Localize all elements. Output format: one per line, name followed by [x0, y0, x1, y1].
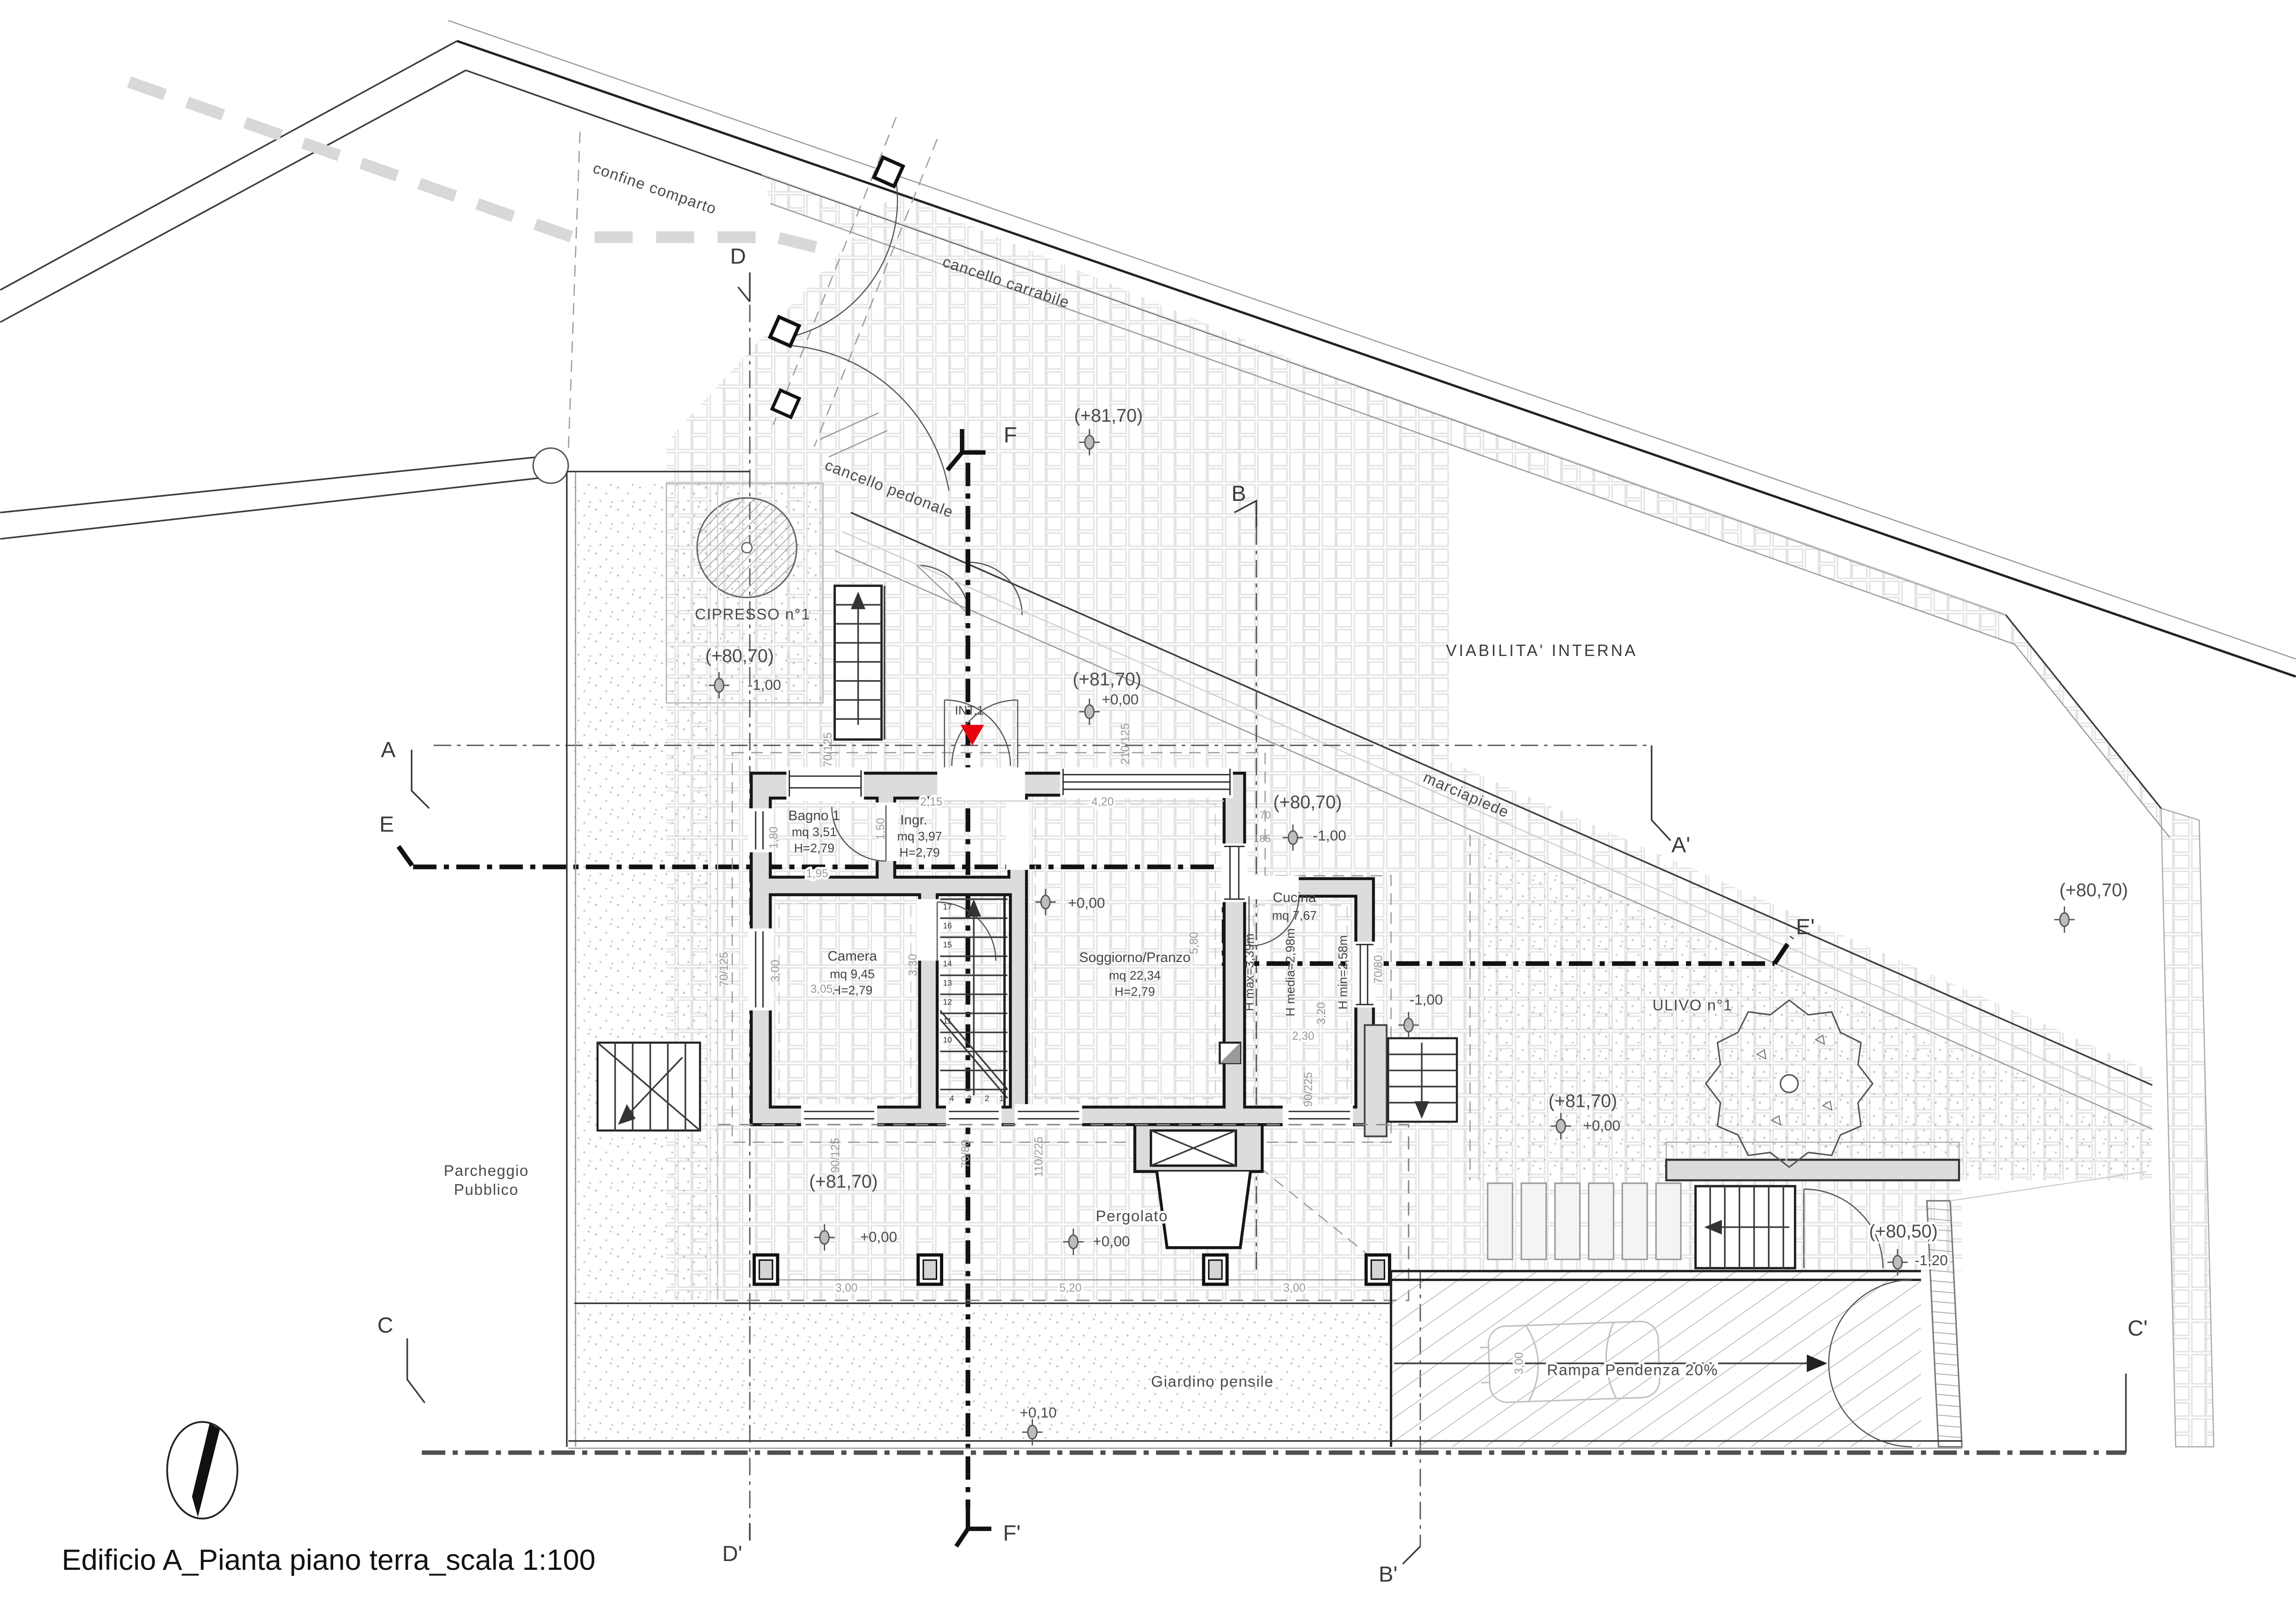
soggiorno-name: Soggiorno/Pranzo	[1079, 950, 1191, 965]
camera-name: Camera	[828, 949, 877, 964]
soggiorno-height: H=2,79	[1114, 985, 1155, 999]
north-court-stair	[835, 586, 885, 739]
dim-150: 1,50	[875, 818, 887, 840]
dim-580: 5,80	[1188, 932, 1201, 954]
bagno-name: Bagno 1	[788, 808, 840, 823]
stair-num-4: 4	[950, 1094, 954, 1103]
quota-ulivo: (+81,70)	[1549, 1091, 1617, 1111]
camera-area: mq 9,45	[830, 967, 875, 981]
quota-cipresso: (+80,70)	[705, 646, 774, 666]
dim-185: 185	[1254, 833, 1271, 844]
quota-soggiorno: +0,00	[1068, 894, 1105, 911]
dim-330: 3,30	[907, 954, 920, 976]
ramp-hatch	[1391, 1271, 1921, 1447]
stair-num-16: 16	[943, 921, 952, 930]
se-stair	[1696, 1186, 1795, 1268]
quota-pergola: +0,00	[1093, 1233, 1130, 1249]
stair-num-2: 2	[985, 1094, 989, 1103]
parcheggio-label-2: Pubblico	[454, 1181, 519, 1199]
dim-180: 1,80	[768, 826, 780, 849]
stair-num-10: 10	[943, 1035, 952, 1044]
ulivo-label: ULIVO n°1	[1653, 997, 1733, 1014]
se-wall-band	[1666, 1160, 1959, 1180]
section-d-label: D	[730, 244, 746, 269]
stair-num-12: 12	[943, 997, 952, 1006]
dim-70-125-n: 70/125	[822, 732, 834, 767]
quota-ulivo-sub: +0,00	[1583, 1117, 1620, 1134]
stair-num-13: 13	[943, 978, 952, 987]
dim-195: 1,95	[806, 868, 828, 880]
dim-70-80-e: 70/80	[1373, 955, 1385, 984]
cypress-tree	[697, 498, 796, 597]
section-b1-label: B'	[1379, 1562, 1398, 1587]
pergolato-label: Pergolato	[1096, 1208, 1168, 1225]
section-a-label: A	[381, 737, 396, 762]
section-f-label: F	[1004, 423, 1017, 447]
quota-court-sub: +0,00	[1101, 691, 1139, 708]
section-e-label: E	[380, 812, 394, 837]
dim-pergola-520: 5,20	[1059, 1282, 1082, 1294]
section-c1-label: C'	[2128, 1316, 2147, 1341]
section-e1-label: E'	[1796, 915, 1815, 939]
stair-num-1: 1	[999, 1094, 1004, 1103]
section-c-label: C	[377, 1313, 393, 1338]
cipresso-label: CIPRESSO n°1	[695, 606, 810, 623]
dim-300: 3,00	[769, 960, 782, 982]
dim-pergola-300b: 3,00	[1283, 1282, 1306, 1294]
quota-scala-est: -1,00	[1409, 991, 1443, 1008]
quota-ne: (+80,70)	[1273, 792, 1342, 812]
dim-70-80-s: 70/80	[960, 1140, 972, 1168]
dim-210-125: 210/125	[1119, 723, 1132, 764]
dim-420: 4,20	[1091, 796, 1114, 808]
north-arrow	[167, 1422, 237, 1518]
bagno-area: mq 3,51	[792, 825, 837, 839]
section-b-label: B	[1232, 481, 1246, 506]
dim-320: 3,20	[1315, 1002, 1328, 1024]
quota-se-sub: -1,20	[1915, 1252, 1948, 1268]
quota-est: (+80,70)	[2060, 880, 2128, 900]
quota-parcheggio-sub: +0,00	[860, 1228, 897, 1245]
dim-110-225: 110/225	[1033, 1137, 1045, 1177]
dim-90-225: 90/225	[1302, 1072, 1315, 1107]
stair-num-11: 11	[943, 1016, 952, 1025]
cucina-hmin: H min=2,58m	[1336, 935, 1350, 1010]
east-garden-stair	[1365, 1025, 1457, 1136]
stair-num-14: 14	[943, 959, 952, 968]
olive-trunk	[1780, 1075, 1798, 1093]
dim-305: 3,05	[810, 983, 833, 996]
quota-road: (+81,70)	[1074, 406, 1143, 426]
cucina-hmedia: H media=2,98m	[1283, 928, 1297, 1016]
quota-giardino: +0,10	[1020, 1404, 1057, 1421]
quota-ne-sub: -1,00	[1313, 827, 1346, 844]
quota-court: (+81,70)	[1073, 669, 1141, 689]
int1-label: INT.1	[955, 704, 984, 718]
stair-num-3: 3	[967, 1094, 972, 1103]
cucina-hmax: H max=3,39m	[1242, 933, 1256, 1011]
bagno-height: H=2,79	[794, 841, 834, 855]
camera-height: H=2,79	[832, 983, 872, 997]
soggiorno-area: mq 22,34	[1109, 968, 1161, 982]
ingresso-name: Ingr.	[900, 812, 927, 828]
porch-steps	[1157, 1172, 1250, 1248]
section-f1-label: F'	[1003, 1521, 1020, 1546]
dim-215: 2,15	[920, 796, 942, 808]
quota-se: (+80,50)	[1869, 1221, 1938, 1242]
cucina-area: mq 7,67	[1272, 908, 1317, 922]
giardino-label: Giardino pensile	[1151, 1374, 1274, 1391]
stair-num-17: 17	[943, 902, 952, 911]
section-d1-label: D'	[722, 1542, 742, 1566]
dim-90-125: 90/125	[829, 1138, 842, 1173]
cucina-name: Cucina	[1273, 890, 1316, 906]
giardino-pensile-area	[574, 1303, 1391, 1441]
dim-230: 2,30	[1292, 1030, 1314, 1043]
dim-ramp-300: 3,00	[1513, 1352, 1525, 1374]
section-a1-label: A'	[1672, 833, 1691, 857]
quota-parcheggio: (+81,70)	[809, 1171, 877, 1192]
manhole-circle	[533, 448, 568, 483]
stair-num-15: 15	[943, 940, 952, 949]
dim-pergola-300a: 3,00	[835, 1282, 858, 1294]
west-boundary-stair	[597, 1043, 700, 1131]
viabilita-label: VIABILITA' INTERNA	[1446, 642, 1637, 660]
cypress-trunk	[742, 543, 752, 553]
ingresso-area: mq 3,97	[897, 830, 942, 843]
quota-cipresso-sub: -1,00	[748, 676, 781, 693]
dim-70-125-w: 70/125	[718, 952, 731, 987]
sheet-title: Edificio A_Pianta piano terra_scala 1:10…	[62, 1544, 595, 1576]
ingresso-height: H=2,79	[899, 845, 940, 859]
ramp	[1391, 1271, 1921, 1447]
rampa-label: Rampa Pendenza 20%	[1547, 1362, 1718, 1379]
floor-plan-sheet: confine comparto cancello carrabile canc…	[0, 0, 2296, 1624]
dim-70: 70	[1259, 809, 1271, 821]
plan-drawing: confine comparto cancello carrabile canc…	[0, 0, 2296, 1624]
parcheggio-label-1: Parcheggio	[444, 1162, 529, 1180]
